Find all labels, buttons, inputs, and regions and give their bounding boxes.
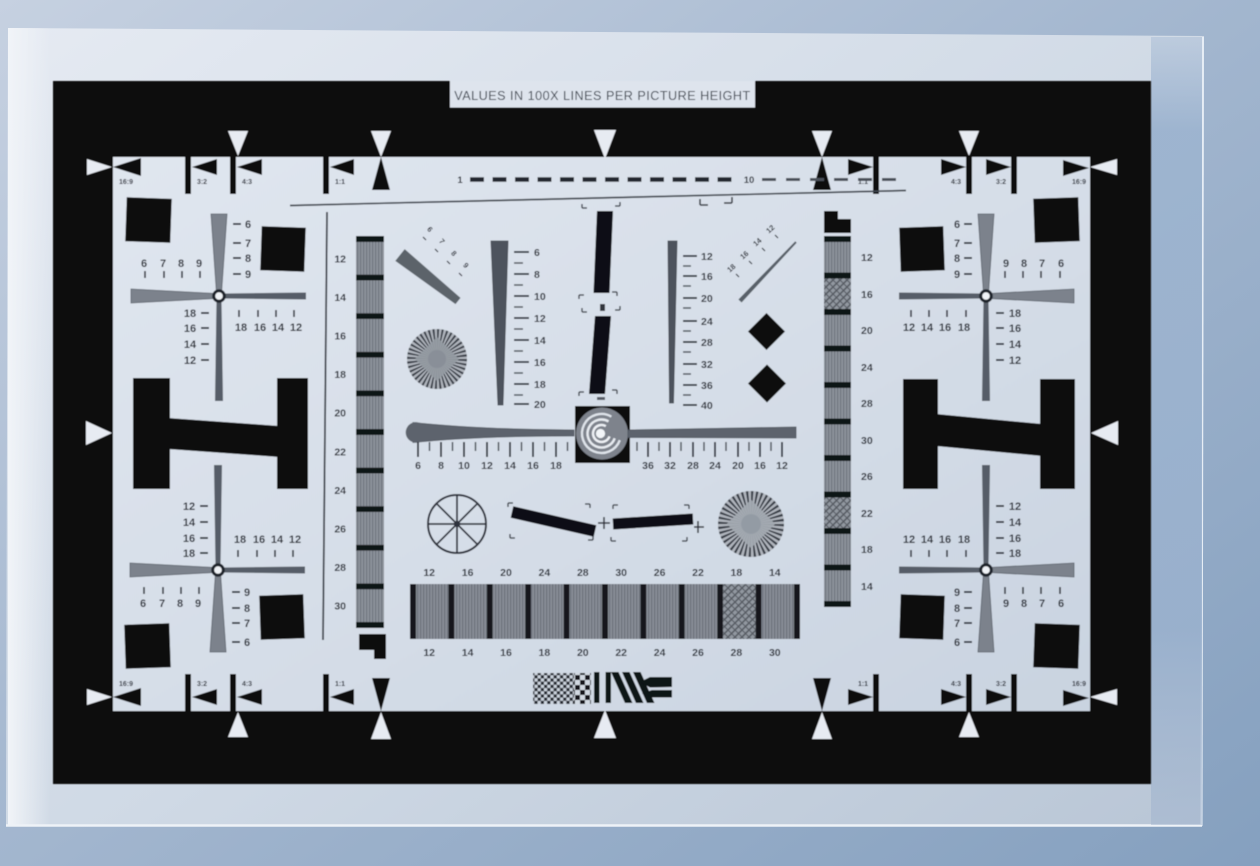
svg-text:8: 8	[177, 598, 183, 610]
svg-text:18: 18	[184, 308, 196, 320]
svg-text:28: 28	[701, 337, 713, 349]
svg-text:8: 8	[244, 603, 250, 615]
svg-text:18: 18	[1009, 548, 1021, 560]
svg-text:22: 22	[334, 446, 346, 458]
svg-text:6: 6	[245, 219, 251, 231]
svg-text:14: 14	[1009, 517, 1022, 529]
svg-text:12: 12	[861, 252, 873, 264]
svg-text:7: 7	[1039, 258, 1045, 270]
svg-text:32: 32	[664, 460, 676, 472]
svg-text:12: 12	[534, 313, 546, 325]
svg-text:12: 12	[423, 567, 435, 579]
svg-text:1:1: 1:1	[335, 681, 345, 688]
svg-text:12: 12	[903, 322, 915, 334]
svg-text:16: 16	[534, 357, 546, 369]
svg-text:18: 18	[534, 379, 546, 391]
svg-text:36: 36	[701, 380, 713, 392]
svg-text:8: 8	[1021, 598, 1027, 610]
svg-text:10: 10	[744, 175, 755, 186]
svg-text:12: 12	[1009, 355, 1021, 367]
svg-text:26: 26	[692, 647, 704, 659]
svg-text:12: 12	[334, 253, 346, 265]
svg-text:24: 24	[654, 647, 666, 659]
svg-text:14: 14	[504, 460, 516, 472]
svg-text:40: 40	[701, 400, 713, 412]
svg-text:6: 6	[954, 219, 960, 231]
svg-text:30: 30	[769, 647, 781, 659]
svg-text:18: 18	[731, 567, 743, 579]
svg-text:28: 28	[334, 562, 346, 574]
svg-text:6: 6	[534, 247, 540, 259]
svg-text:7: 7	[244, 618, 250, 630]
svg-text:16: 16	[754, 460, 766, 472]
svg-text:30: 30	[334, 601, 346, 613]
svg-text:6: 6	[140, 598, 146, 610]
svg-text:3:2: 3:2	[197, 681, 207, 688]
svg-text:24: 24	[334, 485, 346, 497]
svg-text:12: 12	[903, 534, 915, 546]
svg-text:20: 20	[732, 460, 744, 472]
svg-text:16: 16	[527, 460, 539, 472]
svg-text:14: 14	[921, 322, 934, 334]
svg-text:12: 12	[423, 647, 435, 659]
svg-text:28: 28	[577, 567, 589, 579]
svg-text:16:9: 16:9	[1072, 681, 1086, 688]
svg-text:16: 16	[1009, 533, 1021, 545]
svg-text:3:2: 3:2	[996, 179, 1006, 186]
svg-text:18: 18	[958, 534, 970, 546]
svg-text:VALUES IN 100X LINES PER PICTU: VALUES IN 100X LINES PER PICTURE HEIGHT	[454, 89, 750, 103]
svg-text:26: 26	[334, 524, 346, 536]
svg-text:18: 18	[183, 548, 195, 560]
svg-text:12: 12	[776, 460, 788, 472]
svg-text:16:9: 16:9	[119, 681, 133, 688]
svg-text:14: 14	[534, 335, 546, 347]
svg-text:14: 14	[921, 534, 934, 546]
svg-text:7: 7	[245, 238, 251, 250]
svg-text:6: 6	[1058, 258, 1064, 270]
svg-text:14: 14	[769, 567, 781, 579]
svg-text:14: 14	[334, 292, 346, 304]
svg-text:14: 14	[462, 647, 474, 659]
svg-text:18: 18	[958, 322, 970, 334]
svg-text:18: 18	[234, 534, 246, 546]
svg-text:4:3: 4:3	[242, 681, 252, 688]
svg-text:12: 12	[290, 322, 302, 334]
svg-text:1:1: 1:1	[858, 681, 868, 688]
svg-text:12: 12	[481, 460, 493, 472]
svg-text:18: 18	[1009, 308, 1021, 320]
svg-text:1: 1	[457, 175, 463, 186]
svg-text:20: 20	[577, 647, 589, 659]
svg-text:32: 32	[701, 359, 713, 371]
svg-text:6: 6	[954, 637, 960, 649]
svg-text:8: 8	[954, 253, 960, 265]
svg-text:10: 10	[458, 460, 470, 472]
svg-text:18: 18	[539, 647, 551, 659]
svg-text:18: 18	[550, 460, 562, 472]
svg-text:3:2: 3:2	[996, 681, 1006, 688]
svg-text:9: 9	[954, 587, 960, 599]
svg-text:20: 20	[534, 399, 546, 411]
svg-text:24: 24	[701, 316, 713, 328]
svg-text:16: 16	[334, 331, 346, 343]
svg-text:8: 8	[178, 258, 184, 270]
svg-text:28: 28	[687, 460, 699, 472]
svg-text:8: 8	[534, 269, 540, 281]
svg-text:14: 14	[861, 581, 873, 593]
svg-text:9: 9	[954, 269, 960, 281]
svg-text:24: 24	[709, 460, 721, 472]
svg-text:16: 16	[183, 533, 195, 545]
svg-text:7: 7	[954, 238, 960, 250]
svg-text:14: 14	[271, 534, 284, 546]
svg-text:14: 14	[184, 339, 197, 351]
svg-text:7: 7	[159, 598, 165, 610]
svg-text:14: 14	[1009, 339, 1022, 351]
svg-text:8: 8	[438, 460, 444, 472]
svg-text:8: 8	[954, 603, 960, 615]
svg-text:24: 24	[539, 567, 551, 579]
svg-text:6: 6	[415, 460, 421, 472]
svg-text:6: 6	[141, 258, 147, 270]
svg-text:20: 20	[861, 325, 873, 337]
svg-text:12: 12	[1009, 501, 1021, 513]
svg-text:18: 18	[235, 322, 247, 334]
svg-text:16:9: 16:9	[1072, 179, 1086, 186]
svg-text:9: 9	[1003, 598, 1009, 610]
svg-text:14: 14	[272, 322, 285, 334]
svg-text:24: 24	[861, 362, 873, 374]
svg-text:8: 8	[245, 253, 251, 265]
svg-text:22: 22	[861, 508, 873, 520]
svg-text:28: 28	[861, 398, 873, 410]
svg-text:14: 14	[183, 517, 196, 529]
svg-text:12: 12	[184, 355, 196, 367]
svg-text:7: 7	[160, 258, 166, 270]
svg-text:12: 12	[289, 534, 301, 546]
svg-text:26: 26	[861, 471, 873, 483]
svg-text:16: 16	[500, 647, 512, 659]
svg-text:16: 16	[184, 323, 196, 335]
svg-text:4:3: 4:3	[951, 179, 961, 186]
svg-text:1:1: 1:1	[335, 179, 345, 186]
svg-text:30: 30	[861, 435, 873, 447]
svg-text:7: 7	[1039, 598, 1045, 610]
svg-text:12: 12	[183, 501, 195, 513]
svg-text:9: 9	[245, 269, 251, 281]
svg-text:9: 9	[195, 598, 201, 610]
svg-text:22: 22	[615, 647, 627, 659]
svg-text:9: 9	[244, 587, 250, 599]
svg-text:9: 9	[1003, 258, 1009, 270]
svg-text:16: 16	[254, 322, 266, 334]
svg-text:26: 26	[654, 567, 666, 579]
svg-text:16: 16	[253, 534, 265, 546]
svg-text:4:3: 4:3	[951, 681, 961, 688]
svg-text:10: 10	[534, 291, 546, 303]
svg-text:16:9: 16:9	[119, 179, 133, 186]
svg-text:16: 16	[861, 289, 873, 301]
svg-text:16: 16	[939, 322, 951, 334]
svg-text:9: 9	[196, 258, 202, 270]
svg-text:20: 20	[334, 408, 346, 420]
svg-text:3:2: 3:2	[197, 179, 207, 186]
svg-text:6: 6	[1058, 598, 1064, 610]
svg-text:20: 20	[500, 567, 512, 579]
svg-text:18: 18	[861, 544, 873, 556]
svg-text:16: 16	[939, 534, 951, 546]
svg-text:16: 16	[1009, 323, 1021, 335]
svg-text:4:3: 4:3	[242, 179, 252, 186]
svg-text:7: 7	[954, 618, 960, 630]
svg-text:16: 16	[462, 567, 474, 579]
svg-text:22: 22	[692, 567, 704, 579]
svg-text:18: 18	[334, 369, 346, 381]
svg-text:20: 20	[701, 293, 713, 305]
svg-text:30: 30	[615, 567, 627, 579]
svg-text:12: 12	[701, 251, 713, 263]
svg-text:6: 6	[244, 637, 250, 649]
svg-text:8: 8	[1021, 258, 1027, 270]
svg-text:16: 16	[701, 271, 713, 283]
svg-text:36: 36	[642, 460, 654, 472]
svg-text:28: 28	[731, 647, 743, 659]
